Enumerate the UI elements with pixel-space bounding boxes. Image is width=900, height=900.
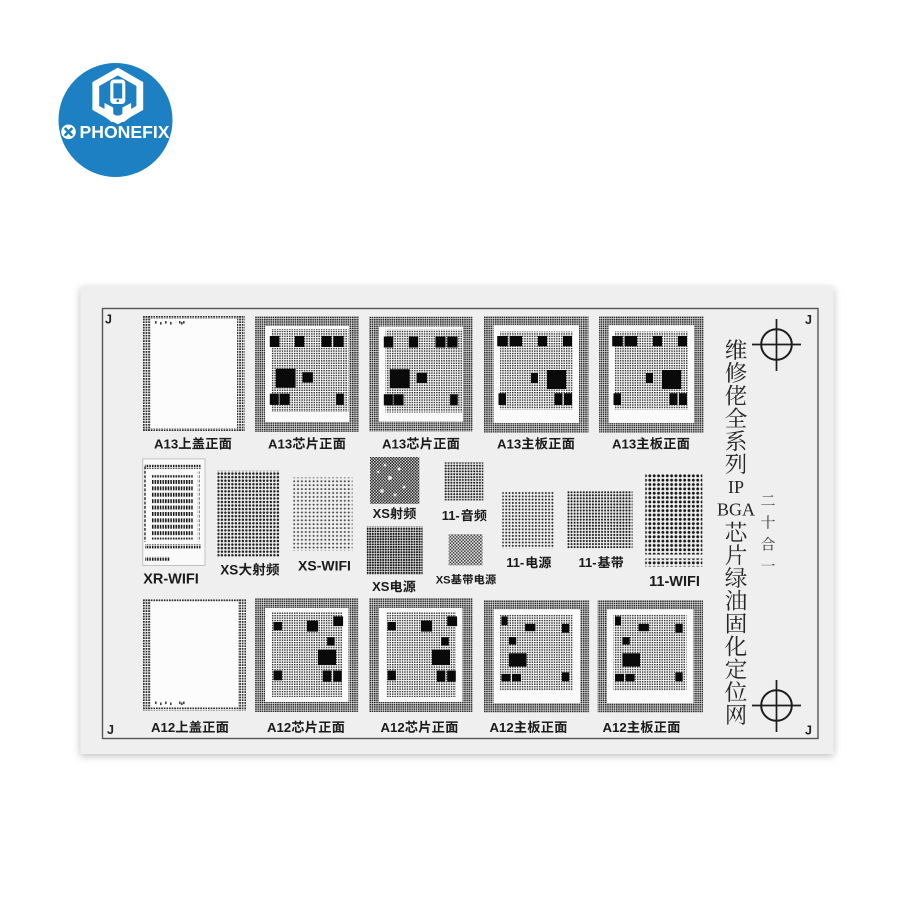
- svg-text:J: J: [105, 313, 112, 327]
- svg-text:XS: XS: [436, 575, 451, 587]
- svg-text:XS: XS: [372, 579, 390, 594]
- svg-text:11-WIFI: 11-WIFI: [649, 574, 700, 590]
- svg-text:11-: 11-: [579, 555, 597, 570]
- svg-text:XS-WIFI: XS-WIFI: [298, 557, 351, 573]
- svg-text:A12: A12: [151, 720, 175, 735]
- svg-text:A13: A13: [268, 436, 292, 451]
- svg-text:XS: XS: [373, 506, 391, 521]
- svg-text:XR-WIFI: XR-WIFI: [143, 572, 199, 588]
- svg-text:BGA: BGA: [717, 500, 755, 520]
- svg-text:IP: IP: [728, 477, 744, 497]
- svg-text:11-: 11-: [506, 555, 524, 570]
- svg-text:XS: XS: [220, 562, 238, 577]
- svg-text:11-: 11-: [442, 508, 460, 523]
- svg-text:J: J: [107, 723, 114, 737]
- svg-text:J: J: [805, 724, 812, 738]
- svg-text:A12: A12: [603, 720, 627, 735]
- svg-text:A13: A13: [497, 436, 521, 451]
- svg-text:A13: A13: [382, 436, 406, 451]
- svg-text:J: J: [805, 313, 812, 327]
- svg-text:A12: A12: [490, 720, 514, 735]
- svg-text:A13: A13: [612, 436, 636, 451]
- svg-text:A12: A12: [381, 720, 405, 735]
- svg-text:A13: A13: [154, 436, 178, 451]
- svg-text:A12: A12: [267, 720, 291, 735]
- svg-text:PHONEFIX: PHONEFIX: [80, 122, 170, 142]
